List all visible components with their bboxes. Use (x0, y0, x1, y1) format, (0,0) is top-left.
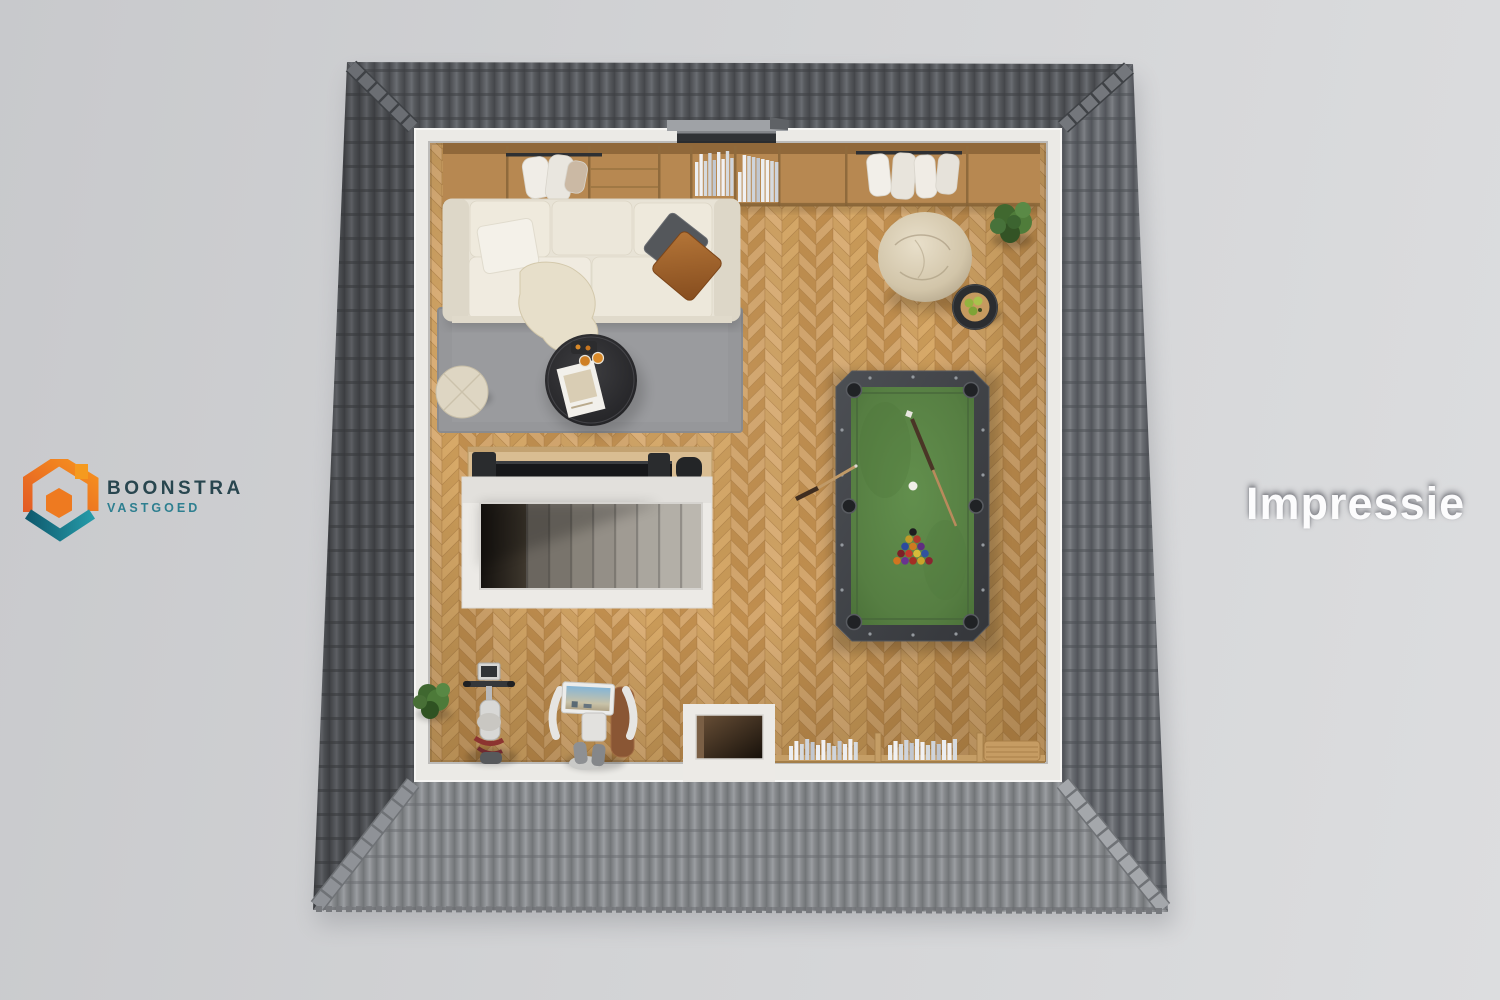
trainer-screen (561, 682, 615, 716)
plant-top-right (990, 202, 1032, 248)
skylight-frame (667, 120, 788, 131)
tv-bracket (648, 453, 670, 480)
roof-bottom-band (313, 782, 1168, 912)
roof-top-band (347, 62, 1133, 128)
drink-glass (580, 356, 591, 367)
bike-seat (477, 713, 501, 731)
brand-logo-icon (23, 459, 101, 543)
sofa-armrest-left (443, 199, 469, 321)
hanging-clothes-right (866, 152, 960, 199)
drink-glass (593, 353, 604, 364)
floor-void-opening (683, 704, 775, 782)
brand-name: BOONSTRA (107, 479, 244, 498)
watermark-text: Impressie (1246, 478, 1465, 530)
trainer-pedal (573, 741, 588, 764)
brand-logo: BOONSTRA VASTGOED (23, 459, 283, 569)
shelf-divider (875, 733, 881, 762)
logo-chimney (75, 464, 88, 479)
snack-tray (571, 341, 597, 354)
tv-bracket (472, 452, 496, 480)
living-area (436, 199, 742, 435)
bean-bag (878, 212, 972, 302)
shelf-divider (977, 733, 983, 762)
staircase (462, 477, 712, 608)
brand-tagline: VASTGOED (107, 502, 244, 515)
logo-inner-hex (46, 488, 72, 518)
basket (984, 741, 1040, 761)
tv-console (468, 447, 712, 481)
impression-render: BOONSTRA VASTGOED Impressie (0, 0, 1500, 1000)
shelf-books (738, 155, 778, 202)
trainer-pedal (591, 744, 606, 767)
